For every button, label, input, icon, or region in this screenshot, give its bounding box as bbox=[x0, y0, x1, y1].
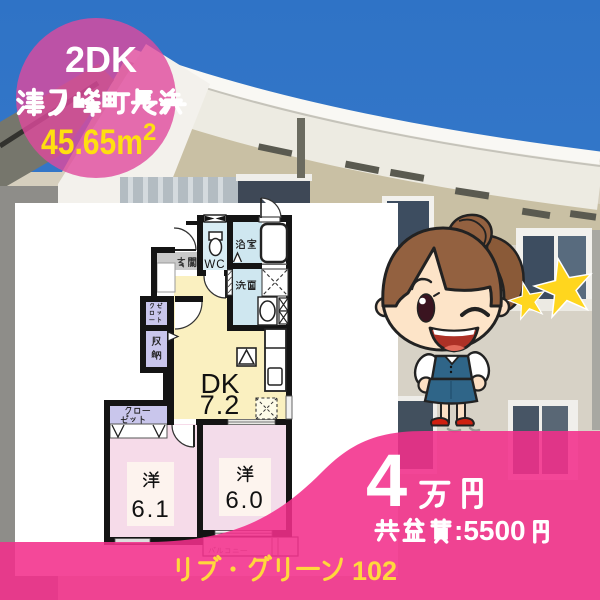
svg-text:2DK: 2DK bbox=[65, 39, 137, 80]
svg-text:45.65m: 45.65m bbox=[41, 123, 143, 162]
svg-text:2: 2 bbox=[143, 119, 156, 146]
